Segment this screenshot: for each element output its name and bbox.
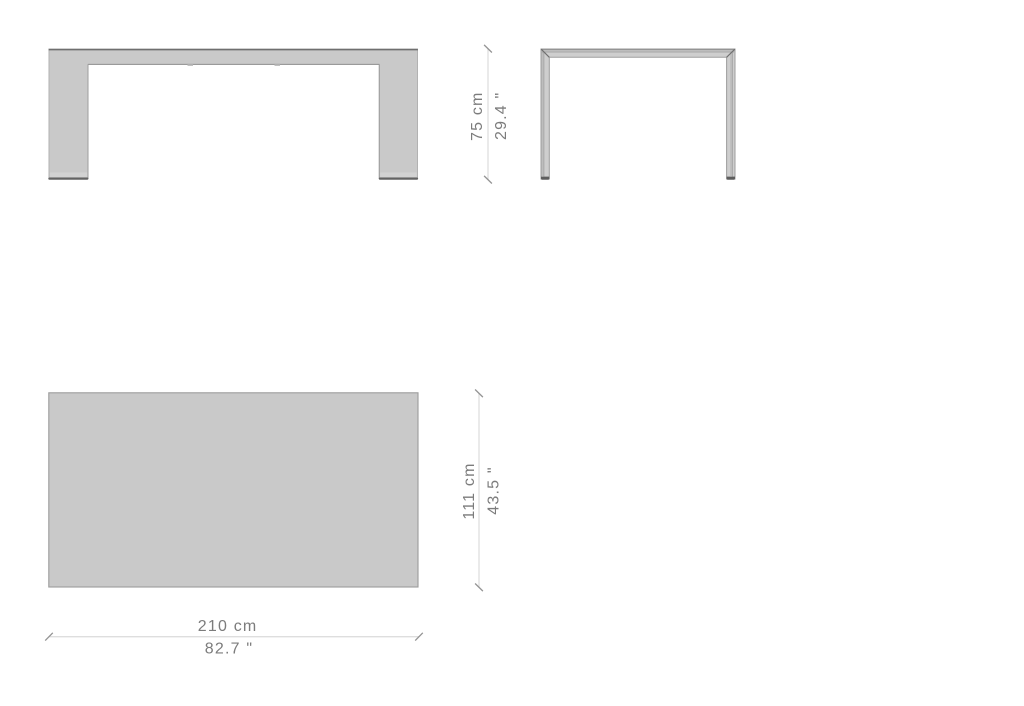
svg-text:210 cm: 210 cm — [198, 618, 258, 635]
svg-text:29.4 ": 29.4 " — [493, 92, 510, 140]
svg-text:82.7 ": 82.7 " — [205, 641, 253, 658]
svg-text:75 cm: 75 cm — [469, 91, 486, 141]
svg-text:111 cm: 111 cm — [461, 462, 478, 519]
svg-text:43.5 ": 43.5 " — [486, 466, 503, 514]
